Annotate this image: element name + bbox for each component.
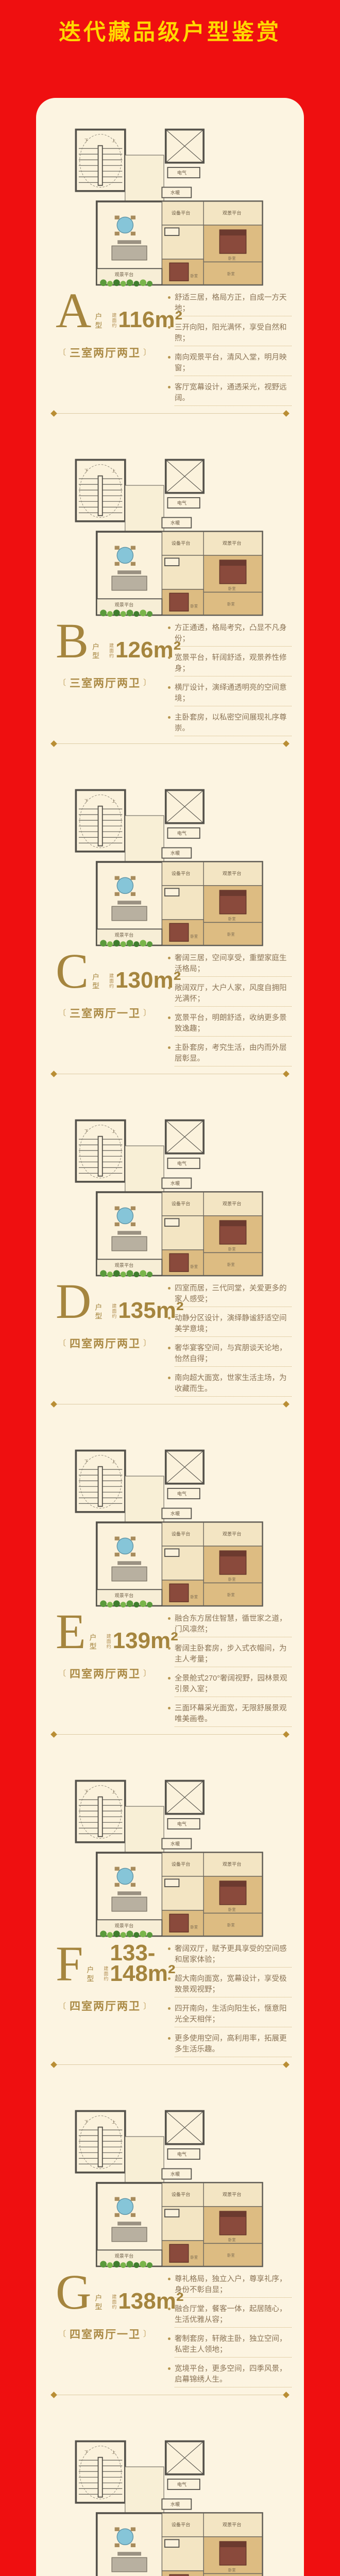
bracket-left-icon: 〔 <box>58 1668 67 1679</box>
view-platform-bottom: 观景平台 <box>97 2250 162 2268</box>
floor-plan-g: 下 上 电气 水暖 设备平台 观景平台 <box>36 2079 304 2269</box>
bracket-left-icon: 〔 <box>58 2328 67 2339</box>
bullet-dot-icon <box>168 356 171 359</box>
view-platform-top: 观景平台 <box>203 862 262 886</box>
stair-down-label: 下 <box>84 468 88 473</box>
unit-section-g: 下 上 电气 水暖 设备平台 观景平台 <box>36 2079 304 2410</box>
electric-room: 电气 <box>167 1819 199 1829</box>
equipment-platform: 设备平台 <box>162 1522 203 1546</box>
dining-table <box>115 1207 135 1227</box>
unit-info: C 户型 建面约 130m² 〔 三室两厅一卫 〕 奢阔三居，空间享受，重塑家庭… <box>36 948 304 1073</box>
unit-section-e: 下 上 电气 水暖 设备平台 观景平台 <box>36 1419 304 1749</box>
bullet-item: 宽景平台，明朗舒适，收纳更多景致逸趣； <box>168 1013 292 1037</box>
bedroom-1: 卧室 <box>203 225 262 262</box>
bedroom-1-label: 卧室 <box>228 917 236 921</box>
bedroom-1-label: 卧室 <box>228 1247 236 1251</box>
bedroom-1-label: 卧室 <box>228 256 236 261</box>
diamond-icon <box>50 1401 57 1408</box>
bullet-item: 融合厅堂，餐客一体，起居随心，生活优雅从容； <box>168 2304 292 2328</box>
floor-plan-drawing: 下 上 电气 水暖 设备平台 观景平台 <box>61 457 279 618</box>
unit-type-label: 户型 <box>92 643 99 660</box>
bullet-dot-icon <box>168 2308 171 2310</box>
bullet-item: 动静分区设计，演绎静谧舒适空间美学意境； <box>168 1313 292 1337</box>
stair-down-label: 下 <box>84 138 88 143</box>
unit-type-label: 户型 <box>87 1966 94 1984</box>
equipment-platform-label: 设备平台 <box>172 2192 191 2197</box>
bedroom-3: 卧室 <box>203 1252 262 1275</box>
equipment-platform: 设备平台 <box>162 862 203 886</box>
bedroom-3-label: 卧室 <box>227 1592 235 1597</box>
equipment-platform-label: 设备平台 <box>172 1531 191 1537</box>
view-platform-top: 观景平台 <box>203 2183 262 2207</box>
bullet-item: 横厅设计，演绎通透明亮的空间意境； <box>168 683 292 706</box>
unit-bullets: 融合东方居住智慧，循世家之道，门风凛然； 奢阔主卧套房，步入式衣帽间，为主人考量… <box>168 1613 292 1733</box>
area-prefix-label: 建面约 <box>109 973 113 989</box>
bedroom-2-label: 卧室 <box>190 2255 198 2260</box>
water-room: 水暖 <box>162 2499 191 2509</box>
bedroom-3-label: 卧室 <box>227 602 235 606</box>
view-platform-bottom: 观景平台 <box>97 1920 162 1938</box>
floor-plan-c: 下 上 电气 水暖 设备平台 观景平台 <box>36 758 304 948</box>
water-room: 水暖 <box>162 848 191 858</box>
bracket-left-icon: 〔 <box>58 677 67 688</box>
bullet-item: 南向超大面宽，世家生活主场，为收藏而生。 <box>168 1373 292 1397</box>
dining-table <box>115 876 135 896</box>
bullet-item: 融合东方居住智慧，循世家之道，门风凛然； <box>168 1614 292 1637</box>
bullet-dot-icon <box>168 1377 171 1379</box>
bracket-left-icon: 〔 <box>58 2001 67 2011</box>
bracket-right-icon: 〕 <box>143 1007 152 1018</box>
bedroom-1: 卧室 <box>203 555 262 592</box>
electric-label: 电气 <box>177 2151 186 2157</box>
bedroom-2-label: 卧室 <box>190 604 198 608</box>
water-room: 水暖 <box>162 1178 191 1188</box>
bracket-right-icon: 〕 <box>143 1668 152 1679</box>
water-room: 水暖 <box>162 517 191 528</box>
diamond-icon <box>50 2392 57 2398</box>
unit-type-label: 户型 <box>95 313 102 330</box>
bullet-item: 奢阔三居，空间享受，重塑家庭生活格局； <box>168 953 292 977</box>
bullet-dot-icon <box>168 1677 171 1680</box>
electric-room: 电气 <box>167 2149 199 2159</box>
dining-table <box>115 2197 135 2217</box>
bracket-right-icon: 〕 <box>143 2328 152 2339</box>
bedroom-3: 卧室 <box>203 262 262 284</box>
diamond-icon <box>283 1401 290 1408</box>
page-title: 迭代藏品级户型鉴赏 <box>0 21 340 45</box>
stair-up-label: 上 <box>112 1459 115 1464</box>
unit-info: G 户型 建面约 138m² 〔 四室两厅一卫 〕 尊礼格局，独立入户，尊享礼序… <box>36 2269 304 2394</box>
bedroom-2: 卧室 <box>162 2241 203 2266</box>
layout-badge: 〔 四室两厅两卫 〕 <box>56 1998 168 2013</box>
bullet-dot-icon <box>168 2337 171 2340</box>
view-platform-top: 观景平台 <box>203 1853 262 1876</box>
section-divider <box>52 1732 288 1737</box>
bullet-item: 客厅宽幕设计，通透采光，视野远阔。 <box>168 382 292 406</box>
bullet-item: 奢华宴客空间，与宾朋谈天论地，怡然自得； <box>168 1343 292 1367</box>
bullet-item: 奢制套房，轩敞主卧，独立空间，私密主人领地； <box>168 2334 292 2358</box>
bedroom-2-label: 卧室 <box>190 1925 198 1929</box>
view-platform-top: 观景平台 <box>203 2513 262 2537</box>
bedroom-2: 卧室 <box>162 2571 203 2576</box>
view-platform-bottom-label: 观景平台 <box>115 932 134 938</box>
view-platform-top-label: 观景平台 <box>223 1201 242 1207</box>
bullet-dot-icon <box>168 716 171 719</box>
bedroom-2-label: 卧室 <box>190 1595 198 1599</box>
bedroom-1: 卧室 <box>203 1216 262 1253</box>
unit-bullets: 舒适三居，格局方正，自成一方天地； 三开向阳，阳光满怀，享受自然和煦； 南向观景… <box>168 292 292 412</box>
layout-badge: 〔 四室两厅两卫 〕 <box>56 1666 168 1681</box>
bedroom-2: 卧室 <box>162 1580 203 1606</box>
bullet-item: 宽境平台，更多空间，四季风景，启幕锦绣人生。 <box>168 2364 292 2387</box>
water-label: 水暖 <box>171 2171 180 2177</box>
view-platform-top-label: 观景平台 <box>223 2192 242 2197</box>
equipment-platform: 设备平台 <box>162 201 203 225</box>
unit-info: F 户型 建面约 133-148m² 〔 四室两厅两卫 〕 奢阔双厅，赋予更具享… <box>36 1939 304 2063</box>
dining-table <box>115 1867 135 1887</box>
bedroom-1: 卧室 <box>203 2537 262 2574</box>
bullet-dot-icon <box>168 1046 171 1049</box>
bullet-item: 舒适三居，格局方正，自成一方天地； <box>168 293 292 316</box>
equipment-platform-label: 设备平台 <box>172 871 191 876</box>
bullet-dot-icon <box>168 1317 171 1319</box>
bracket-right-icon: 〕 <box>143 1337 152 1348</box>
bedroom-3-label: 卧室 <box>227 932 235 937</box>
diamond-icon <box>50 1731 57 1738</box>
water-label: 水暖 <box>171 2501 180 2507</box>
electric-room: 电气 <box>167 2479 199 2489</box>
floor-plan-drawing: 下 上 电气 水暖 设备平台 观景平台 <box>61 127 279 287</box>
elevator <box>166 130 203 163</box>
kitchen-sink <box>165 2209 179 2217</box>
diamond-icon <box>50 410 57 417</box>
view-platform-top: 观景平台 <box>203 201 262 225</box>
area-prefix-label: 建面约 <box>111 2294 116 2310</box>
view-platform-bottom-label: 观景平台 <box>115 2253 134 2259</box>
equipment-platform-label: 设备平台 <box>172 540 191 546</box>
bullet-item: 四开南向，生活向阳生长，惬意阳光全天相伴； <box>168 2004 292 2027</box>
unit-section-f: 下 上 电气 水暖 设备平台 观景平台 <box>36 1749 304 2079</box>
floor-plan-a: 下 上 电气 水暖 设备平台 观景平台 <box>36 98 304 287</box>
bullet-item: 主卧套房，以私密空间展现礼序尊崇。 <box>168 713 292 736</box>
bedroom-1-label: 卧室 <box>228 1577 236 1582</box>
water-room: 水暖 <box>162 2168 191 2179</box>
stairwell: 下 上 <box>76 2442 125 2503</box>
electric-label: 电气 <box>177 1161 186 1166</box>
bullet-dot-icon <box>168 987 171 989</box>
section-divider <box>52 411 288 416</box>
stairwell: 下 上 <box>76 130 125 191</box>
bullet-dot-icon <box>168 1707 171 1709</box>
bracket-left-icon: 〔 <box>58 1337 67 1348</box>
equipment-platform: 设备平台 <box>162 1853 203 1876</box>
layout-text: 三室两厅一卫 <box>70 1005 141 1021</box>
electric-room: 电气 <box>167 1488 199 1499</box>
kitchen-sink <box>165 1549 179 1556</box>
floor-plan-e: 下 上 电气 水暖 设备平台 观景平台 <box>36 1419 304 1608</box>
bullet-item: 方正通透，格局考究，凸显不凡身份； <box>168 623 292 647</box>
diamond-icon <box>50 740 57 747</box>
area-prefix-label: 建面约 <box>109 643 113 658</box>
bullet-item: 南向观景平台，清风入堂，明月映窗； <box>168 352 292 376</box>
bullet-item: 四室而居，三代同堂，关爱更多的家人感受； <box>168 1283 292 1307</box>
bedroom-1-label: 卧室 <box>228 1907 236 1912</box>
layout-text: 四室两厅一卫 <box>70 2326 141 2342</box>
stairwell: 下 上 <box>76 1121 125 1182</box>
view-platform-top-label: 观景平台 <box>223 1531 242 1537</box>
bullet-dot-icon <box>168 1287 171 1290</box>
layout-text: 四室两厅两卫 <box>70 1335 141 1351</box>
unit-section-h: 下 上 电气 水暖 设备平台 观景平台 <box>36 2410 304 2576</box>
electric-label: 电气 <box>177 831 186 836</box>
bullet-dot-icon <box>168 1647 171 1650</box>
layout-badge: 〔 三室两厅一卫 〕 <box>56 1005 168 1021</box>
view-platform-bottom-label: 观景平台 <box>115 1592 134 1598</box>
section-divider <box>52 1402 288 1406</box>
diamond-icon <box>283 1731 290 1738</box>
electric-label: 电气 <box>177 1821 186 1827</box>
water-label: 水暖 <box>171 520 180 526</box>
layout-badge: 〔 四室两厅两卫 〕 <box>56 1335 168 1351</box>
elevator <box>166 790 203 823</box>
diamond-icon <box>283 1071 290 1077</box>
diamond-icon <box>50 1071 57 1077</box>
bedroom-2: 卧室 <box>162 259 203 285</box>
electric-room: 电气 <box>167 1158 199 1168</box>
area-prefix-label: 建面约 <box>106 1634 111 1649</box>
stair-down-label: 下 <box>84 2120 88 2124</box>
bullet-item: 尊礼格局，独立入户，尊享礼序，身份不彰自显； <box>168 2274 292 2298</box>
bullet-item: 敞阔双厅，大户人家，风度自拥阳光满怀； <box>168 983 292 1007</box>
view-platform-top: 观景平台 <box>203 532 262 555</box>
stair-down-label: 下 <box>84 799 88 803</box>
bullet-dot-icon <box>168 686 171 689</box>
layout-text: 四室两厅两卫 <box>70 1998 141 2013</box>
bedroom-3: 卧室 <box>203 2573 262 2576</box>
view-platform-bottom-label: 观景平台 <box>115 1923 134 1928</box>
electric-room: 电气 <box>167 828 199 838</box>
stair-down-label: 下 <box>84 2450 88 2454</box>
unit-type-label: 户型 <box>90 1634 97 1651</box>
bedroom-2-label: 卧室 <box>190 274 198 278</box>
unit-letter: F <box>56 1945 83 1984</box>
kitchen-sink <box>165 2539 179 2547</box>
unit-area: 133-148m² <box>110 1943 175 1984</box>
bullet-dot-icon <box>168 656 171 659</box>
bedroom-3-label: 卧室 <box>227 2253 235 2258</box>
bedroom-2-label: 卧室 <box>190 1264 198 1269</box>
bullet-dot-icon <box>168 2037 171 2040</box>
unit-info: D 户型 建面约 135m² 〔 四室两厅两卫 〕 四室而居，三代同堂，关爱更多… <box>36 1278 304 1403</box>
bedroom-1: 卧室 <box>203 1546 262 1583</box>
bullet-dot-icon <box>168 1016 171 1019</box>
stairwell: 下 上 <box>76 790 125 852</box>
stair-up-label: 上 <box>112 2120 115 2124</box>
section-divider <box>52 741 288 746</box>
view-platform-bottom-label: 观景平台 <box>115 602 134 607</box>
view-platform-bottom-label: 观景平台 <box>115 1262 134 1268</box>
elevator <box>166 2442 203 2475</box>
area-prefix-label: 建面约 <box>111 313 116 328</box>
bracket-left-icon: 〔 <box>58 1007 67 1018</box>
view-platform-bottom: 观景平台 <box>97 1589 162 1607</box>
bedroom-1: 卧室 <box>203 1876 262 1913</box>
kitchen-sink <box>165 1218 179 1226</box>
view-platform-top: 观景平台 <box>203 1192 262 1216</box>
bullet-item: 奢阔双厅，赋予更具享受的空间感和居家体验； <box>168 1944 292 1968</box>
unit-bullets: 四室而居，三代同堂，关爱更多的家人感受； 动静分区设计，演绎静谧舒适空间美学意境… <box>168 1282 292 1403</box>
unit-letter: D <box>56 1282 91 1321</box>
view-platform-top-label: 观景平台 <box>223 1861 242 1867</box>
equipment-platform-label: 设备平台 <box>172 2522 191 2528</box>
bedroom-2: 卧室 <box>162 1250 203 1276</box>
view-platform-bottom: 观景平台 <box>97 599 162 617</box>
water-label: 水暖 <box>171 1841 180 1846</box>
dining-table <box>115 1537 135 1557</box>
water-label: 水暖 <box>171 1511 180 1516</box>
view-platform-bottom: 观景平台 <box>97 1259 162 1277</box>
bullet-item: 更多使用空间，高利用率，拓展更多生活乐趣。 <box>168 2033 292 2057</box>
unit-type-label: 户型 <box>92 973 99 991</box>
bedroom-2-label: 卧室 <box>190 934 198 939</box>
stair-up-label: 上 <box>112 2450 115 2454</box>
diamond-icon <box>283 740 290 747</box>
bedroom-2: 卧室 <box>162 589 203 615</box>
equipment-platform-label: 设备平台 <box>172 210 191 216</box>
kitchen-sink <box>165 558 179 566</box>
bracket-right-icon: 〕 <box>143 347 152 358</box>
area-prefix-label: 建面约 <box>111 1303 116 1319</box>
bullet-dot-icon <box>168 326 171 329</box>
bullet-item: 三开向阳，阳光满怀，享受自然和煦； <box>168 323 292 346</box>
layout-badge: 〔 三室两厅两卫 〕 <box>56 675 168 690</box>
bullet-dot-icon <box>168 2007 171 2010</box>
view-platform-top-label: 观景平台 <box>223 210 242 216</box>
electric-room: 电气 <box>167 498 199 508</box>
equipment-platform-label: 设备平台 <box>172 1201 191 1207</box>
bullet-item: 奢阔主卧套房，步入式衣帽间，为主人考量； <box>168 1643 292 1667</box>
bullet-item: 超大南向面宽，宽幕设计，享受极致景观视野； <box>168 1974 292 1997</box>
equipment-platform: 设备平台 <box>162 532 203 555</box>
unit-bullets: 方正通透，格局考究，凸显不凡身份； 宽景平台，轩阔舒适，观景养性修身； 横厅设计… <box>168 622 292 742</box>
layout-text: 四室两厅两卫 <box>70 1666 141 1681</box>
unit-type-label: 户型 <box>95 2294 102 2312</box>
dining-table <box>115 216 135 236</box>
bedroom-1-label: 卧室 <box>228 586 236 591</box>
floor-plan-d: 下 上 电气 水暖 设备平台 观景平台 <box>36 1089 304 1278</box>
area-prefix-label: 建面约 <box>103 1966 108 1981</box>
unit-section-b: 下 上 电气 水暖 设备平台 观景平台 <box>36 428 304 758</box>
dining-table <box>115 2528 135 2548</box>
diamond-icon <box>283 2392 290 2398</box>
floor-plan-drawing: 下 上 电气 水暖 设备平台 观景平台 <box>61 2438 279 2576</box>
bedroom-3: 卧室 <box>203 1583 262 1605</box>
diamond-icon <box>50 2061 57 2068</box>
unit-info: A 户型 建面约 116m² 〔 三室两厅两卫 〕 舒适三居，格局方正，自成一方… <box>36 287 304 412</box>
bedroom-2: 卧室 <box>162 920 203 945</box>
bullet-dot-icon <box>168 957 171 959</box>
unit-section-a: 下 上 电气 水暖 设备平台 观景平台 <box>36 98 304 428</box>
bedroom-1: 卧室 <box>203 2207 262 2244</box>
bedroom-1: 卧室 <box>203 886 262 923</box>
water-label: 水暖 <box>171 190 180 195</box>
view-platform-bottom: 观景平台 <box>97 929 162 947</box>
unit-letter: G <box>56 2273 91 2312</box>
water-room: 水暖 <box>162 1838 191 1849</box>
elevator <box>166 1121 203 1154</box>
kitchen-sink <box>165 1879 179 1887</box>
unit-section-d: 下 上 电气 水暖 设备平台 观景平台 <box>36 1089 304 1419</box>
bedroom-2: 卧室 <box>162 1910 203 1936</box>
unit-letter: B <box>56 622 89 660</box>
elevator <box>166 2111 203 2144</box>
floor-plan-b: 下 上 电气 水暖 设备平台 观景平台 <box>36 428 304 618</box>
stairwell: 下 上 <box>76 2111 125 2173</box>
bedroom-3: 卧室 <box>203 592 262 615</box>
view-platform-top-label: 观景平台 <box>223 871 242 876</box>
bullet-dot-icon <box>168 296 171 299</box>
bullet-dot-icon <box>168 1617 171 1620</box>
floor-plan-drawing: 下 上 电气 水暖 设备平台 观景平台 <box>61 787 279 948</box>
bullet-item: 三面环幕采光面宽，无限舒展景观唯美画卷。 <box>168 1703 292 1727</box>
water-room: 水暖 <box>162 187 191 197</box>
equipment-platform: 设备平台 <box>162 1192 203 1216</box>
bullet-dot-icon <box>168 1977 171 1980</box>
electric-label: 电气 <box>177 500 186 506</box>
stair-down-label: 下 <box>84 1459 88 1464</box>
bracket-left-icon: 〔 <box>58 347 67 358</box>
section-divider <box>52 1072 288 1076</box>
stair-up-label: 上 <box>112 468 115 473</box>
water-label: 水暖 <box>171 850 180 856</box>
kitchen-sink <box>165 888 179 896</box>
unit-bullets: 奢阔双厅，赋予更具享受的空间感和居家体验； 超大南向面宽，宽幕设计，享受极致景观… <box>168 1943 292 2063</box>
bedroom-3-label: 卧室 <box>227 1262 235 1267</box>
bedroom-1-label: 卧室 <box>228 2568 236 2572</box>
view-platform-top: 观景平台 <box>203 1522 262 1546</box>
unit-info: E 户型 建面约 139m² 〔 四室两厅两卫 〕 融合东方居住智慧，循世家之道… <box>36 1608 304 1733</box>
dining-table <box>115 546 135 566</box>
bullet-dot-icon <box>168 2278 171 2280</box>
electric-label: 电气 <box>177 170 186 176</box>
bullet-dot-icon <box>168 626 171 629</box>
elevator <box>166 1451 203 1484</box>
floor-plan-h: 下 上 电气 水暖 设备平台 观景平台 <box>36 2410 304 2576</box>
view-platform-bottom-label: 观景平台 <box>115 272 134 277</box>
stairwell: 下 上 <box>76 1451 125 1512</box>
floor-plan-drawing: 下 上 电气 水暖 设备平台 观景平台 <box>61 1448 279 1608</box>
bullet-item: 主卧套房，考究生活，由内而外层层彰显。 <box>168 1043 292 1066</box>
stair-up-label: 上 <box>112 138 115 143</box>
bullet-dot-icon <box>168 1947 171 1950</box>
diamond-icon <box>283 410 290 417</box>
view-platform-top-label: 观景平台 <box>223 2522 242 2528</box>
unit-section-c: 下 上 电气 水暖 设备平台 观景平台 <box>36 758 304 1089</box>
elevator <box>166 1781 203 1814</box>
stair-up-label: 上 <box>112 1129 115 1133</box>
bedroom-3-label: 卧室 <box>227 1923 235 1927</box>
floor-plan-drawing: 下 上 电气 水暖 设备平台 观景平台 <box>61 1117 279 1278</box>
bullet-item: 宽景平台，轩阔舒适，观景养性修身； <box>168 653 292 676</box>
bullet-dot-icon <box>168 1347 171 1349</box>
stair-up-label: 上 <box>112 1789 115 1794</box>
floor-plan-drawing: 下 上 电气 水暖 设备平台 观景平台 <box>61 1778 279 1939</box>
bedroom-1-label: 卧室 <box>228 2238 236 2242</box>
stair-down-label: 下 <box>84 1789 88 1794</box>
floor-plan-f: 下 上 电气 水暖 设备平台 观景平台 <box>36 1749 304 1939</box>
view-platform-top-label: 观景平台 <box>223 540 242 546</box>
electric-label: 电气 <box>177 2482 186 2487</box>
